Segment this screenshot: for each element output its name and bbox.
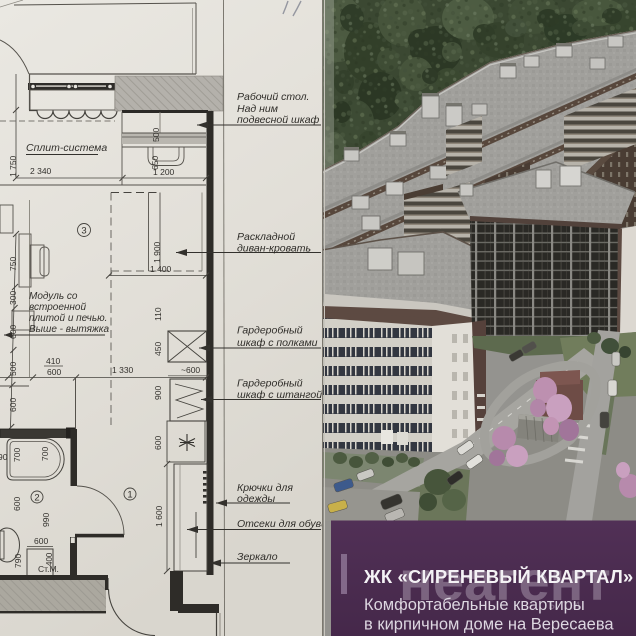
svg-text:750: 750 (8, 257, 18, 271)
svg-text:1 600: 1 600 (154, 505, 164, 527)
svg-text:1 900: 1 900 (152, 241, 162, 263)
svg-text:650: 650 (150, 156, 160, 170)
svg-text:3: 3 (81, 226, 86, 237)
svg-text:600: 600 (12, 497, 22, 511)
svg-text:в кирпичном доме на Вересаева: в кирпичном доме на Вересаева (364, 616, 614, 634)
svg-text:300: 300 (8, 291, 18, 305)
svg-text:990: 990 (41, 513, 51, 527)
svg-text:диван-кровать: диван-кровать (237, 243, 311, 255)
svg-text:110: 110 (153, 307, 163, 321)
svg-text:плитой и печью.: плитой и печью. (29, 313, 107, 324)
svg-text:Гардеробный: Гардеробный (237, 378, 303, 390)
svg-text:900: 900 (153, 386, 163, 400)
svg-text:Модуль со: Модуль со (29, 291, 78, 302)
svg-text:2 340: 2 340 (30, 166, 52, 176)
svg-text:одежды: одежды (237, 493, 275, 505)
svg-text:Раскладной: Раскладной (237, 231, 295, 243)
svg-text:500: 500 (8, 362, 18, 376)
svg-text:встроенной: встроенной (29, 302, 86, 313)
svg-text:2: 2 (34, 493, 39, 504)
svg-text:1 330: 1 330 (112, 365, 134, 375)
svg-text:Гардеробный: Гардеробный (237, 325, 303, 337)
svg-text:410: 410 (46, 356, 60, 366)
svg-text:1 400: 1 400 (150, 264, 172, 274)
svg-text:Сплит-система: Сплит-система (26, 142, 107, 154)
svg-text:450: 450 (153, 342, 163, 356)
svg-text:90: 90 (0, 452, 8, 462)
svg-text:700: 700 (12, 448, 22, 462)
svg-text:400: 400 (45, 552, 54, 566)
svg-text:Зеркало: Зеркало (237, 551, 278, 563)
svg-text:Выше - вытяжка: Выше - вытяжка (29, 324, 110, 335)
svg-text:подвесной шкаф: подвесной шкаф (237, 114, 320, 126)
svg-text:600: 600 (34, 536, 48, 546)
svg-text:~600: ~600 (181, 365, 200, 375)
svg-text:Отсеки для обуви: Отсеки для обуви (237, 518, 327, 530)
svg-text:шкаф с штангой: шкаф с штангой (237, 389, 322, 401)
svg-text:1 750: 1 750 (8, 155, 18, 177)
svg-text:600: 600 (153, 436, 163, 450)
svg-text:790: 790 (13, 554, 23, 568)
svg-text:ЖК «СИРЕНЕВЫЙ КВАРТАЛ»: ЖК «СИРЕНЕВЫЙ КВАРТАЛ» (363, 566, 633, 587)
svg-text:Рабочий стол.: Рабочий стол. (237, 91, 309, 103)
svg-text:Комфортабельные квартиры: Комфортабельные квартиры (364, 596, 585, 614)
svg-text:700: 700 (40, 447, 50, 461)
svg-text:600: 600 (47, 367, 61, 377)
svg-text:1: 1 (127, 490, 132, 501)
svg-text:500: 500 (151, 128, 161, 142)
svg-text:шкаф с полками: шкаф с полками (237, 337, 318, 349)
svg-text:600: 600 (8, 398, 18, 412)
